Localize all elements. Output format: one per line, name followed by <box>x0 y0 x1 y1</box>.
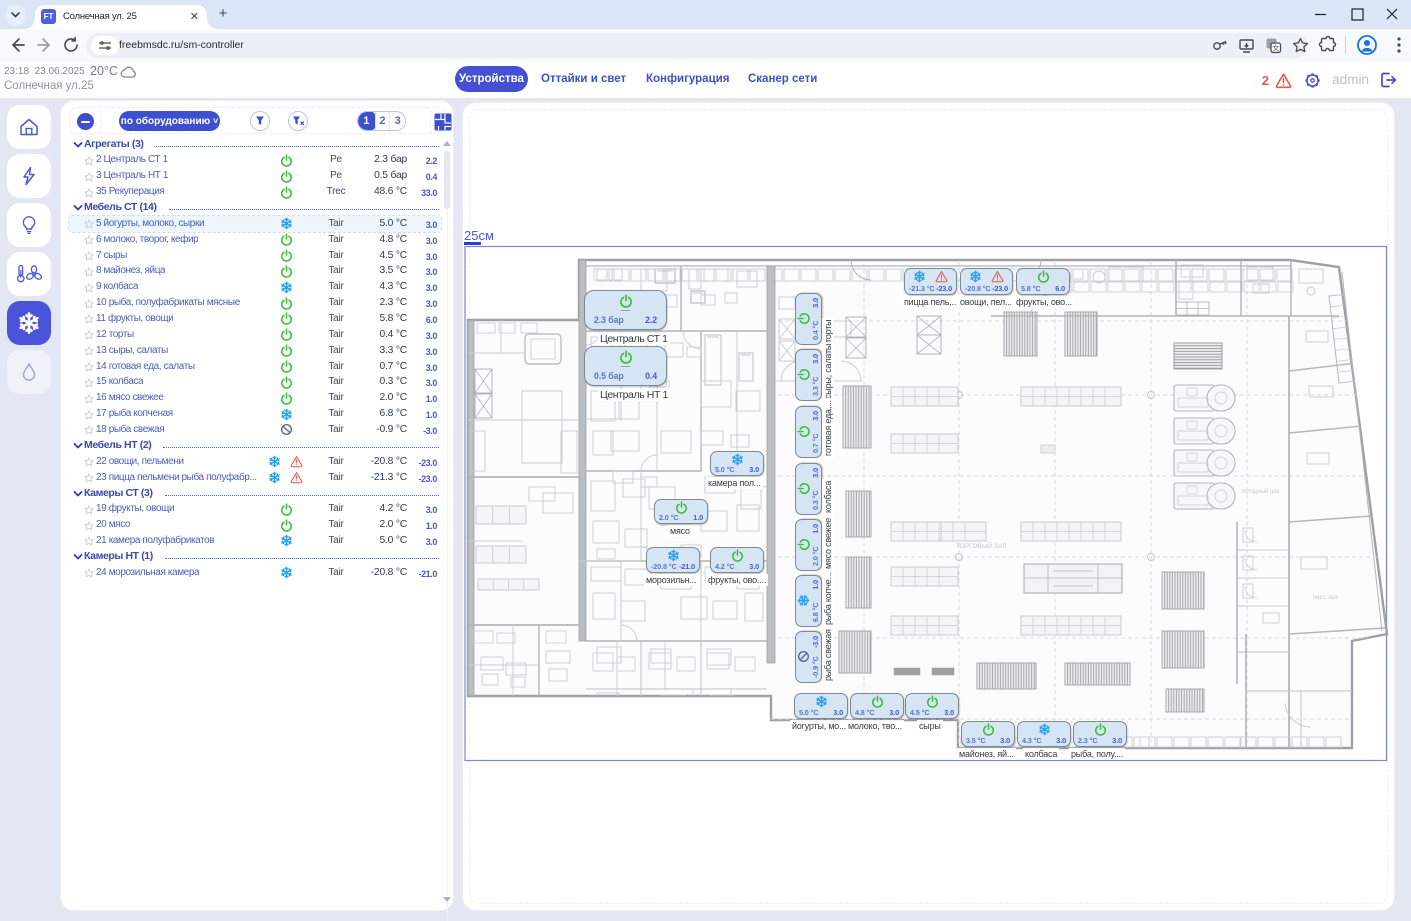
svg-text:ТОРГОВЫЙ ЗАЛ: ТОРГОВЫЙ ЗАЛ <box>956 541 1007 550</box>
svg-text:пист. зал: пист. зал <box>1313 595 1338 601</box>
svg-text:холодный цех: холодный цех <box>1241 488 1280 495</box>
svg-text:文: 文 <box>1272 44 1279 53</box>
